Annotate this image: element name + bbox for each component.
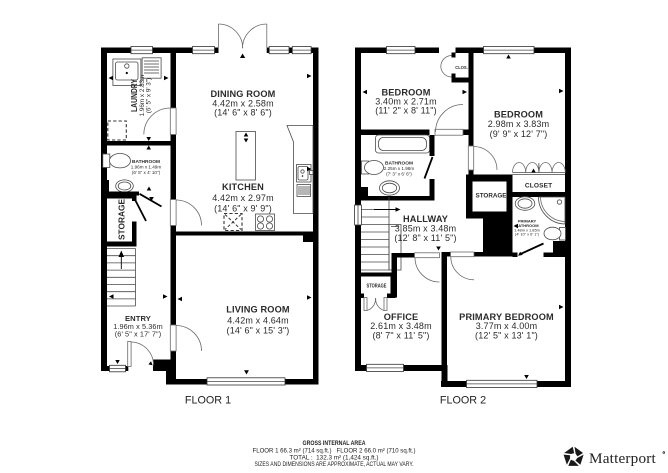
svg-text:2.25m x 1.98m: 2.25m x 1.98m (384, 166, 415, 171)
svg-text:(6' 5" x 17' 7"): (6' 5" x 17' 7") (115, 330, 161, 339)
svg-text:FLOOR 2: FLOOR 2 (440, 395, 486, 407)
svg-text:BEDROOM: BEDROOM (494, 109, 543, 119)
svg-text:FLOOR 1 66.3 m² (714 sq.ft.): FLOOR 1 66.3 m² (714 sq.ft.) FLOOR 2 66.… (253, 447, 416, 454)
svg-text:3.85m x 3.48m: 3.85m x 3.48m (395, 223, 456, 233)
svg-text:LIVING ROOM: LIVING ROOM (226, 305, 290, 315)
svg-text:1.96m x 1.49m: 1.96m x 1.49m (131, 165, 162, 170)
svg-text:STORAGE: STORAGE (476, 193, 508, 200)
svg-text:DINING ROOM: DINING ROOM (211, 89, 276, 99)
svg-text:(8' 7" x 11' 5"): (8' 7" x 11' 5") (372, 331, 429, 341)
svg-text:STORAGE: STORAGE (117, 199, 127, 240)
svg-text:(11' 2" x 8' 11"): (11' 2" x 8' 11") (375, 106, 437, 116)
svg-text:2.61m x 3.48m: 2.61m x 3.48m (370, 321, 431, 331)
svg-text:STORAGE: STORAGE (367, 283, 388, 289)
svg-text:LAUNDRY: LAUNDRY (130, 78, 139, 112)
svg-text:4.42m x 4.64m: 4.42m x 4.64m (227, 315, 288, 325)
svg-text:(7' 3" x 6' 6"): (7' 3" x 6' 6") (386, 171, 412, 176)
svg-text:KITCHEN: KITCHEN (222, 182, 264, 192)
svg-text:3.77m x 4.00m: 3.77m x 4.00m (476, 321, 537, 331)
svg-text:(14' 6" x 9' 9"): (14' 6" x 9' 9") (214, 203, 272, 213)
svg-text:(6' 5" x 4' 10"): (6' 5" x 4' 10") (132, 170, 161, 175)
svg-text:(9' 9" x 12' 7"): (9' 9" x 12' 7") (490, 129, 548, 139)
svg-text:GROSS INTERNAL AREA: GROSS INTERNAL AREA (303, 441, 367, 447)
svg-text:CLOSET: CLOSET (525, 183, 552, 190)
svg-text:(4' 10" x 6' 1"): (4' 10" x 6' 1") (515, 232, 540, 237)
svg-text:FLOOR 1: FLOOR 1 (185, 395, 231, 407)
svg-text:Matterport: Matterport (589, 450, 657, 467)
svg-text:(6' 5" x 9' 3"): (6' 5" x 9' 3") (146, 78, 153, 113)
svg-text:(12' 5" x 13' 1"): (12' 5" x 13' 1") (475, 331, 538, 341)
svg-text:(12' 8" x 11' 5"): (12' 8" x 11' 5") (394, 233, 456, 243)
svg-text:(14' 6" x 8' 6"): (14' 6" x 8' 6") (214, 108, 272, 118)
svg-text:SIZES AND DIMENSIONS ARE APPRO: SIZES AND DIMENSIONS ARE APPROXIMATE, AC… (255, 461, 414, 468)
svg-text:(14' 6" x 15' 3"): (14' 6" x 15' 3") (227, 326, 290, 336)
svg-text:2.98m x 3.83m: 2.98m x 3.83m (488, 119, 549, 129)
svg-text:CLOS.: CLOS. (455, 65, 468, 70)
svg-text:4.42m x 2.97m: 4.42m x 2.97m (212, 193, 273, 203)
